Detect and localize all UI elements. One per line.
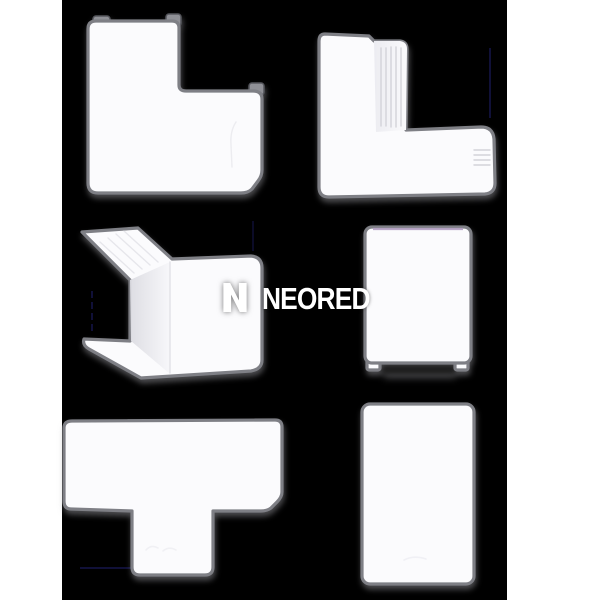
flat-angle-cover-right [319, 34, 495, 197]
blank-cover-plate [362, 404, 474, 584]
neored-n-logo-icon [222, 282, 248, 313]
flat-angle-cover-left [88, 14, 264, 193]
tee-cover [64, 420, 282, 575]
small-end-cap [365, 227, 471, 374]
watermark-text: NEORED [262, 283, 370, 314]
product-photo-canvas: NEORED [0, 0, 600, 600]
cap-floor-shadow [382, 365, 456, 374]
